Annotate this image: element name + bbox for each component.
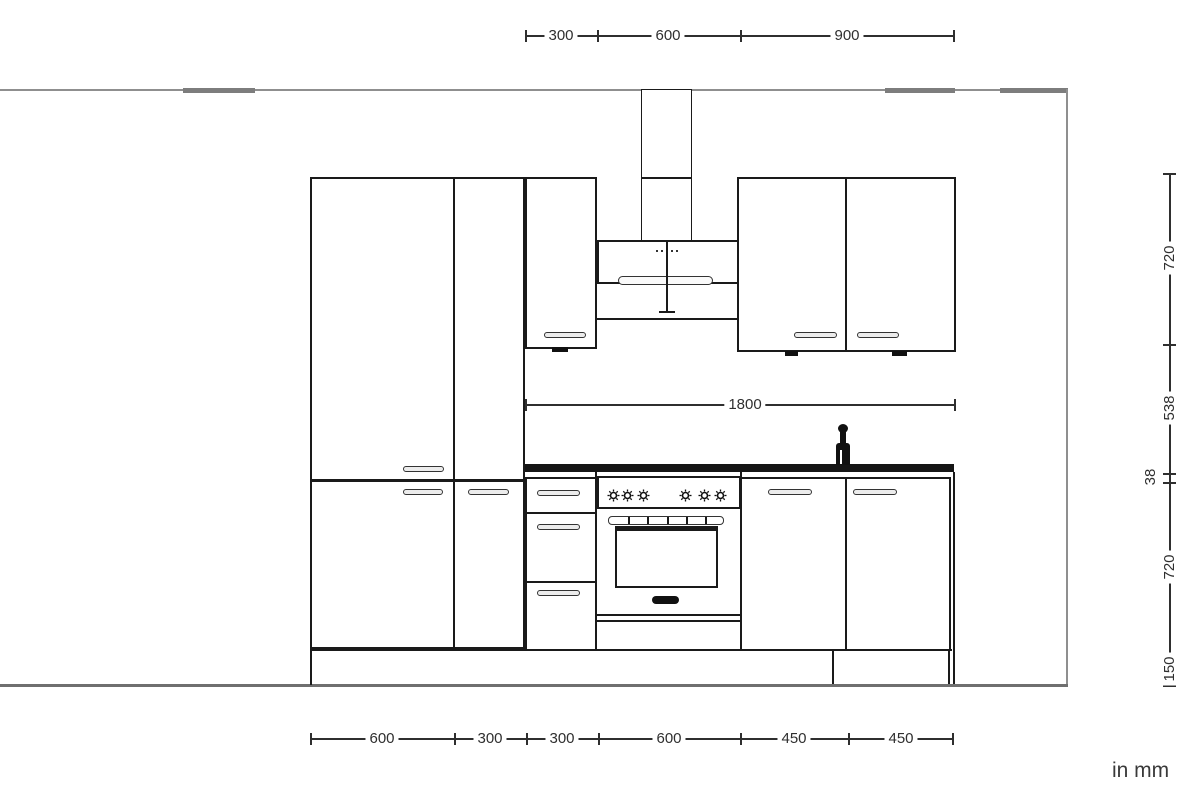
plinth-side-line (310, 649, 312, 685)
oven-handle-bar (608, 516, 724, 525)
dimension-tick (740, 733, 742, 745)
ceiling-beam-mark (885, 88, 955, 93)
door-handle (768, 489, 812, 495)
dimension-label: 450 (884, 731, 917, 748)
tall-cabinet-300 (453, 177, 525, 649)
faucet-highlight (840, 450, 842, 464)
door-handle (468, 489, 509, 495)
hood-control-dot (671, 250, 673, 252)
dimension-bottom: 600 300 300 600 450 450 (310, 733, 954, 747)
door-handle (544, 332, 586, 338)
burner-knob-icon (698, 489, 711, 502)
tall-cabinet-600 (310, 177, 455, 649)
drawer-handle (537, 524, 580, 530)
oven-handle-segment-line (647, 517, 649, 524)
ceiling-beam-mark (1000, 88, 1068, 93)
burner-knob-icon (679, 489, 692, 502)
dimension-label: 538 (1162, 391, 1179, 424)
floor-line (0, 684, 1068, 687)
plinth-side-line (948, 651, 950, 684)
dimension-tick (310, 733, 312, 745)
dimension-label: 300 (544, 28, 577, 45)
faucet-body (836, 443, 850, 465)
hood-control-dot (656, 250, 658, 252)
dimension-label: 600 (365, 731, 398, 748)
door-handle (403, 466, 444, 472)
unit-note: in mm (1112, 759, 1169, 783)
right-wall-line (1066, 89, 1068, 687)
under-cabinet-mark (892, 351, 907, 356)
oven-door-window (615, 526, 718, 588)
dimension-top: 300 600 900 (525, 30, 955, 44)
hood-control-dot (661, 250, 663, 252)
door-handle (403, 489, 443, 495)
burner-knob-icon (621, 489, 634, 502)
hood-duct-joint-line (641, 177, 692, 179)
oven-door-bottom-line (597, 614, 741, 616)
oven-door-latch (652, 596, 679, 604)
under-cabinet-mark (785, 351, 798, 356)
dimension-tick (1163, 173, 1176, 175)
hood-lower-edge-line (597, 318, 741, 320)
dimension-tick (598, 733, 600, 745)
dimension-label: 150 (1162, 652, 1179, 685)
dimension-tick (952, 733, 954, 745)
oven-handle-segment-line (686, 517, 688, 524)
drawer-handle (537, 590, 580, 596)
dimension-tick (597, 30, 599, 42)
wall-cabinet-divider-line (845, 179, 847, 350)
under-cabinet-mark (552, 347, 568, 352)
range-drawer-top-line (597, 620, 741, 622)
dimension-tick (953, 30, 955, 42)
oven-handle-segment-line (667, 517, 669, 524)
dimension-label: 1800 (724, 397, 765, 414)
hood-control-dot (676, 250, 678, 252)
dimension-line (310, 738, 954, 740)
burner-knob-icon (637, 489, 650, 502)
door-handle (857, 332, 899, 338)
oven-handle-segment-line (705, 517, 707, 524)
hood-center-line (666, 240, 668, 313)
dimension-tick (526, 733, 528, 745)
oven-handle-segment-line (628, 517, 630, 524)
burner-knob-icon (607, 489, 620, 502)
tall-cabinet-door-split-line (312, 479, 523, 482)
drawer-divider-line (527, 581, 595, 583)
dimension-label: 720 (1162, 241, 1179, 274)
plinth-joint-line (832, 651, 834, 684)
plinth-top-line (312, 649, 952, 651)
dimension-tick (525, 30, 527, 42)
dimension-label: 300 (545, 731, 578, 748)
dimension-label: 450 (777, 731, 810, 748)
hood-duct (641, 89, 692, 241)
base-cabinet-right (845, 477, 951, 651)
dimension-tick (954, 399, 956, 411)
dimension-label: 600 (651, 28, 684, 45)
dimension-label: 600 (652, 731, 685, 748)
dimension-label: 38 (1143, 465, 1160, 490)
dimension-label: 720 (1162, 550, 1179, 583)
dimension-tick (848, 733, 850, 745)
dimension-label: 300 (473, 731, 506, 748)
hood-center-tick (659, 311, 675, 313)
dimension-tick (1163, 482, 1176, 484)
kitchen-elevation-drawing: 300 600 900 1800 720 538 38 720 150 600 (0, 0, 1200, 800)
door-handle (853, 489, 897, 495)
sink-base-cabinet (740, 477, 847, 651)
dimension-worktop-run: 1800 (525, 399, 956, 412)
dimension-tick (1163, 473, 1176, 475)
countertop (525, 464, 954, 472)
dimension-label: 900 (830, 28, 863, 45)
side-panel-line (953, 472, 955, 684)
dimension-right: 720 538 38 720 150 (1163, 173, 1176, 687)
dimension-tick (525, 399, 527, 411)
dimension-tick (1163, 344, 1176, 346)
ceiling-beam-mark (183, 88, 255, 93)
drawer-unit (525, 477, 597, 651)
wall-cabinet-left (525, 177, 597, 349)
drawer-handle (537, 490, 580, 496)
burner-knob-icon (714, 489, 727, 502)
door-handle (794, 332, 837, 338)
dimension-tick (454, 733, 456, 745)
dimension-tick (740, 30, 742, 42)
drawer-divider-line (527, 512, 595, 514)
